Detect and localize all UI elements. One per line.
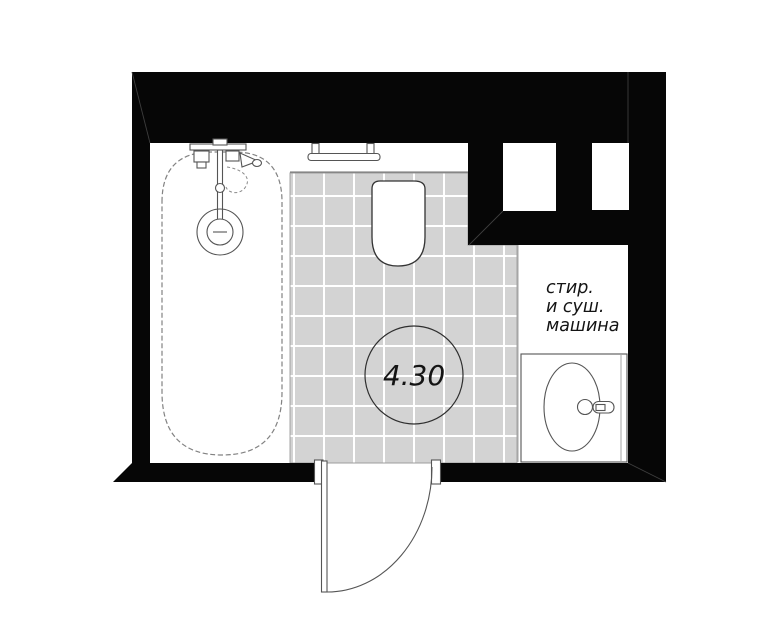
- wall-bottom-right: [441, 463, 667, 482]
- mixer-mount: [213, 139, 227, 145]
- washer-label-line2: и суш.: [546, 297, 605, 317]
- wall-left: [132, 143, 150, 463]
- door-jamb-right: [432, 460, 441, 484]
- sink-faucet-base: [578, 400, 593, 415]
- shelf-bracket-right: [367, 144, 374, 155]
- washer-label-line1: стир.: [546, 278, 594, 298]
- wall-right: [628, 143, 666, 482]
- washer-label-line3: машина: [546, 316, 619, 336]
- wall-top: [132, 72, 666, 143]
- area-value: 4.30: [383, 359, 445, 392]
- pipe-joint: [216, 184, 225, 193]
- entry-door: [315, 460, 441, 592]
- shelf-bar: [308, 154, 380, 161]
- wall-bottom-left: [113, 463, 315, 482]
- door-swing-arc: [327, 467, 432, 592]
- mixer-valve-left: [194, 151, 209, 162]
- bathtub: [162, 150, 282, 455]
- sink-counter: [521, 354, 627, 462]
- toilet: [372, 181, 425, 266]
- wall-niche-left: [503, 143, 556, 211]
- mixer-valve-right: [226, 151, 239, 161]
- bathroom-floor-plan: стир. и суш. машина 4.30: [0, 0, 782, 634]
- floor-plan-drawing: стир. и суш. машина 4.30: [0, 0, 782, 634]
- mixer-spout-tip: [253, 160, 262, 167]
- shelf-bracket-left: [312, 144, 319, 155]
- mixer-valve-left-cap: [197, 162, 206, 168]
- wall-niche-right: [592, 143, 629, 210]
- door-leaf: [322, 461, 328, 592]
